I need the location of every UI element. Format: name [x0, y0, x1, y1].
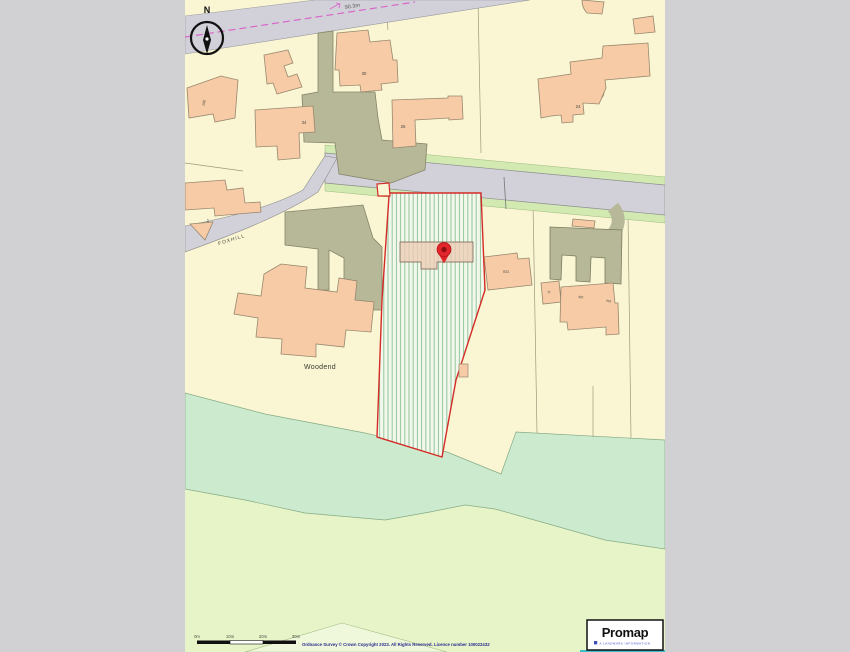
house-number-label: 34	[302, 120, 307, 125]
promap-logo: Promap A LANDMARK INFORMATION	[587, 620, 663, 650]
property-name-label: Woodend	[304, 364, 336, 371]
house-number-label: 24	[576, 104, 581, 109]
scale-tick-label: 30m	[292, 634, 301, 639]
compass-north-label: N	[204, 5, 211, 15]
plot-outbuilding	[459, 364, 468, 377]
screenshot-root: { "frame": { "background": "#d1d1d3" }, …	[0, 0, 850, 652]
outbuilding	[572, 219, 595, 228]
map-canvas[interactable]: 90.3m FOXHILL	[185, 0, 665, 652]
house-number-label: R23	[503, 270, 509, 274]
logo-tagline-text: A LANDMARK INFORMATION	[600, 642, 651, 646]
house	[633, 16, 655, 34]
plot-access-notch	[377, 183, 390, 196]
house-number-label: 18a	[606, 299, 612, 303]
scale-tick-label: 20m	[259, 634, 268, 639]
house-number-label: 18b	[578, 295, 584, 299]
house-number-label: J1	[547, 290, 551, 294]
house-number-label: 26	[401, 124, 406, 129]
scale-tick-label: 0m	[194, 634, 200, 639]
copyright-notice: Ordnance Survey © Crown Copyright 2023. …	[302, 642, 490, 647]
logo-brand-text: Promap	[602, 625, 649, 640]
house-18	[560, 283, 619, 335]
garage-block	[550, 227, 622, 284]
landmark-square-icon	[594, 641, 597, 644]
scale-tick-label: 10m	[226, 634, 235, 639]
ordnance-survey-map: 90.3m FOXHILL	[185, 0, 665, 652]
house-number-label: 30	[362, 71, 367, 76]
